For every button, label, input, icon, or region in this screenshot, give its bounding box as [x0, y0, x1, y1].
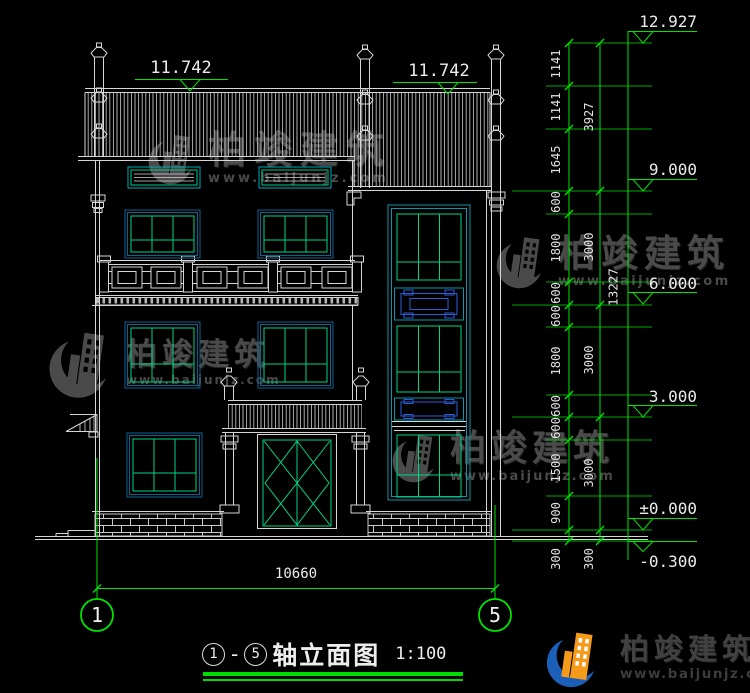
- dimension-inner-label: 1141: [549, 50, 563, 79]
- title-underline-thin: [203, 679, 463, 681]
- dimension-inner-label: 600: [549, 305, 563, 327]
- dimension-inner-label: 1800: [549, 234, 563, 263]
- elevation-level-label: 6.000: [649, 274, 697, 293]
- dimension-inner-label: 600: [549, 191, 563, 213]
- elevation-level-label: ±0.000: [639, 499, 697, 518]
- axis-bubble-1: 1: [81, 599, 113, 631]
- dimension-outer-label: 3927: [582, 103, 596, 132]
- title-text: 轴立面图: [272, 636, 380, 672]
- roof-elevation-label-right: 11.742: [392, 61, 486, 81]
- dimension-outer-label: 3000: [582, 459, 596, 488]
- text-overlay: 11.742 11.742 12.9279.0006.0003.000±0.00…: [0, 0, 750, 692]
- dimension-inner-label: 600: [549, 395, 563, 417]
- elevation-level-label: -0.300: [639, 552, 697, 571]
- title-scale: 1:100: [395, 644, 446, 664]
- overall-width-dimension: 10660: [260, 566, 332, 582]
- dimension-inner-label: 600: [549, 417, 563, 439]
- dimension-inner-label: 1141: [549, 93, 563, 122]
- roof-elevation-label-left: 11.742: [134, 58, 228, 78]
- footer-url: www.baijunjz.com: [620, 668, 750, 682]
- elevation-level-label: 9.000: [649, 160, 697, 179]
- title-underline-thick: [203, 672, 463, 676]
- title-dash: -: [231, 642, 238, 666]
- dimension-inner-label: 1645: [549, 146, 563, 175]
- title-axis-start: 1: [202, 643, 225, 666]
- title-axis-end: 5: [244, 643, 267, 666]
- dimension-outer-label: 300: [582, 548, 596, 570]
- dimension-outer-label: 3000: [582, 346, 596, 375]
- cad-elevation-page: 柏竣建筑 www.baijunjz.com 柏竣建筑 www.baijunjz.…: [0, 0, 750, 692]
- axis-bubble-5: 5: [479, 599, 511, 631]
- dimension-inner-label: 900: [549, 502, 563, 524]
- baijun-logo-icon: [538, 627, 612, 689]
- dimension-inner-label: 1800: [549, 347, 563, 376]
- total-height-dimension: 13227: [606, 268, 621, 306]
- footer-brand-block: 柏竣建筑 www.baijunjz.com: [538, 627, 750, 689]
- footer-brand: 柏竣建筑: [620, 635, 750, 664]
- dimension-outer-label: 3000: [582, 233, 596, 262]
- elevation-level-label: 12.927: [639, 12, 697, 31]
- dimension-inner-label: 300: [549, 548, 563, 570]
- dimension-inner-label: 1500: [549, 454, 563, 483]
- drawing-title: 1 - 5 轴立面图 1:100: [202, 640, 446, 668]
- elevation-level-label: 3.000: [649, 387, 697, 406]
- dimension-inner-label: 600: [549, 282, 563, 304]
